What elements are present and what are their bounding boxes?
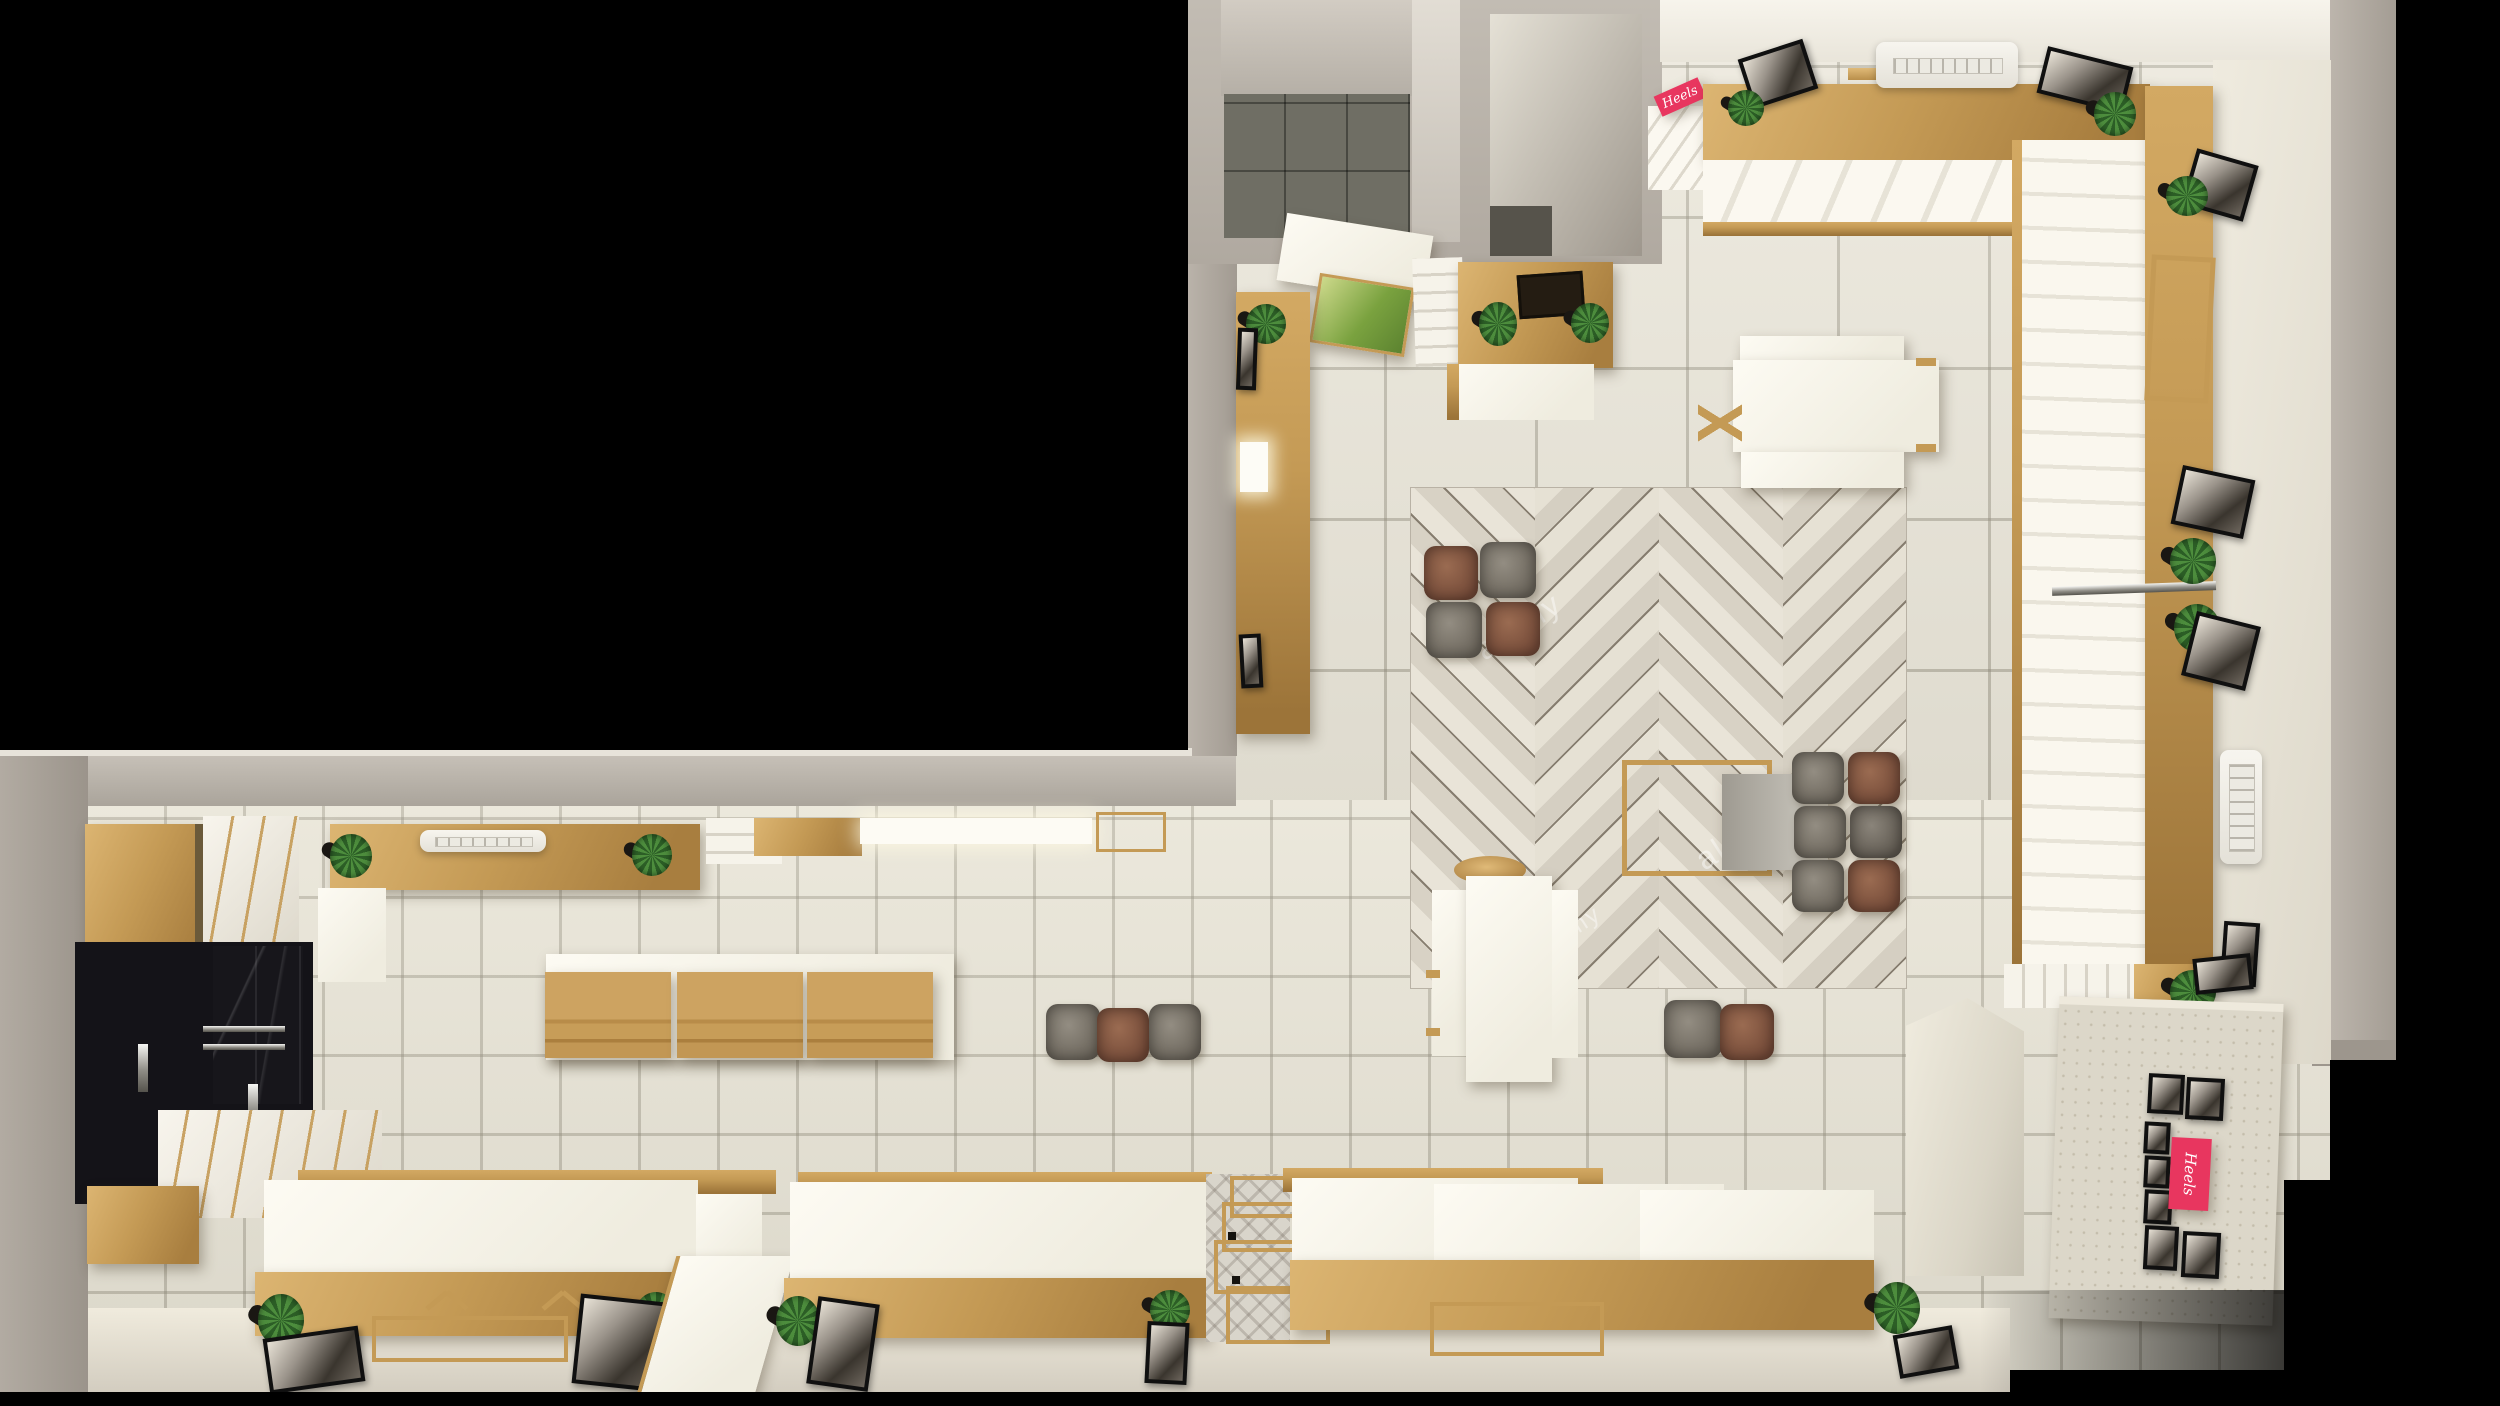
- leaning-gold-frame: [2144, 254, 2216, 403]
- closet-rail: [203, 1026, 285, 1032]
- ottoman-brown: [1848, 752, 1900, 804]
- ottoman-gray: [1794, 806, 1846, 858]
- bw-photo: [2189, 1081, 2221, 1117]
- rug-chevron-column: [1659, 488, 1783, 988]
- desk-white-base: [1447, 364, 1594, 420]
- gold-table-foot: [1426, 970, 1440, 978]
- ottoman-gray: [1426, 602, 1482, 658]
- gallery-frame: [2143, 1155, 2171, 1188]
- gallery-frame: [2181, 1231, 2221, 1279]
- right-shelving-bays: [2022, 140, 2145, 1008]
- left-top-wall: [0, 756, 1236, 806]
- white-door-fan: [203, 816, 299, 952]
- travertine-pillar: [1906, 998, 2024, 1276]
- ac-unit-right: [2220, 750, 2262, 864]
- desk-gold-strip: [1447, 364, 1459, 420]
- gold-easel-frame: [372, 1316, 568, 1362]
- black-unrendered-region: [0, 1392, 2500, 1406]
- potted-plant: [1571, 303, 1609, 343]
- backroom-wall-highlight: [1412, 0, 1460, 242]
- gallery-frame: [2185, 1077, 2225, 1121]
- framed-photo: [1239, 633, 1264, 688]
- ottoman-brown: [1720, 1004, 1774, 1060]
- bw-photo: [811, 1301, 876, 1388]
- ottoman-gray: [1792, 860, 1844, 912]
- ac-grill: [2229, 764, 2255, 853]
- bw-photo: [2197, 957, 2250, 990]
- ottoman-brown: [1424, 546, 1478, 600]
- corner-steps-display: [1648, 106, 1706, 190]
- white-side-cabinet: [318, 888, 386, 982]
- backroom-ceiling: [1221, 0, 1413, 96]
- table-bench: [1552, 890, 1578, 1058]
- gallery-frame: [2147, 1073, 2185, 1115]
- gold-x-leg: [1698, 376, 1742, 470]
- potted-plant: [2094, 92, 2136, 136]
- ottoman-gray: [1664, 1000, 1722, 1058]
- dining-bench: [1741, 452, 1904, 488]
- ottoman-gray: [1046, 1004, 1100, 1060]
- bw-photo: [1240, 332, 1254, 386]
- ottoman-gray: [1149, 1004, 1201, 1060]
- ottoman-gray: [1480, 542, 1536, 598]
- rug-chevron-column: [1783, 488, 1906, 988]
- rack-foot: [1228, 1232, 1236, 1240]
- bw-photo: [1897, 1330, 1954, 1374]
- ac-unit-top: [1876, 42, 2018, 88]
- gold-table-foot: [1426, 1028, 1440, 1036]
- ottoman-brown: [1097, 1008, 1149, 1062]
- framed-photo: [2192, 953, 2253, 995]
- ac-grill: [1893, 58, 2003, 75]
- black-unrendered-region: [0, 0, 1188, 750]
- ottoman-gray: [1850, 806, 1902, 858]
- bw-photo: [2185, 1235, 2217, 1275]
- store-render: alamy alamy alamy Heels: [0, 0, 2500, 1406]
- green-poster: [1309, 273, 1415, 357]
- ottoman-brown: [1848, 860, 1900, 912]
- gold-table-foot: [1916, 358, 1936, 366]
- light-panel: [1240, 442, 1268, 492]
- door-handle: [138, 1044, 148, 1092]
- leaning-framed-photo: [1144, 1321, 1189, 1385]
- black-unrendered-region: [2284, 1180, 2394, 1406]
- gold-riser-box: [807, 972, 933, 1058]
- bw-photo: [2147, 1126, 2166, 1151]
- right-outer-wall: [2330, 0, 2398, 1064]
- ottoman-gray: [1792, 752, 1844, 804]
- gold-table-foot: [1916, 444, 1936, 452]
- gold-riser-box: [677, 972, 803, 1058]
- white-table: [1733, 360, 1939, 452]
- corridor-floor-patch: [1490, 206, 1552, 256]
- rack-foot: [1232, 1276, 1240, 1284]
- heels-poster-label: Heels: [2180, 1152, 2200, 1196]
- display-table-top: [790, 1182, 1206, 1280]
- potted-plant: [2166, 176, 2208, 216]
- bw-photo: [2147, 1229, 2175, 1266]
- bw-photo: [2151, 1077, 2181, 1110]
- framed-photo: [1236, 328, 1258, 391]
- bw-photo: [267, 1330, 361, 1390]
- leaning-framed-photo: [806, 1296, 880, 1392]
- gallery-frame: [2143, 1225, 2179, 1271]
- closet-rail: [203, 1044, 285, 1050]
- gold-easel-frame: [1430, 1302, 1604, 1356]
- potted-plant: [1728, 90, 1764, 126]
- potted-plant: [1874, 1282, 1920, 1334]
- gallery-frame: [2143, 1121, 2171, 1154]
- counter-vent-panel: [420, 830, 546, 852]
- bw-photo: [1149, 1325, 1186, 1381]
- lit-white-counter: [860, 818, 1092, 844]
- bw-photo: [1243, 638, 1259, 685]
- potted-plant: [330, 834, 372, 878]
- gold-riser-box: [545, 972, 671, 1058]
- gold-clothes-rack: [1096, 812, 1166, 852]
- bw-photo: [2147, 1160, 2166, 1185]
- display-table-top: [264, 1180, 698, 1276]
- bw-photo: [2147, 1193, 2168, 1220]
- backroom-tile-floor: [1224, 94, 1410, 238]
- potted-plant: [632, 834, 672, 876]
- gold-edge-strip: [2012, 140, 2022, 1008]
- potted-plant: [2170, 538, 2216, 584]
- bw-photo: [2175, 470, 2250, 535]
- corner-shadow: [1980, 1290, 2330, 1394]
- potted-plant: [1479, 302, 1517, 346]
- gold-shelf-counter: [754, 818, 862, 856]
- black-marble-panels: [213, 946, 303, 1104]
- west-outer-wall: [1187, 264, 1237, 756]
- vent-grill: [435, 837, 533, 846]
- ottoman-brown: [1486, 602, 1540, 656]
- bw-photo: [2186, 616, 2256, 686]
- long-white-table: [1466, 876, 1552, 1082]
- gold-wardrobe-cabinet: [87, 1186, 199, 1264]
- heels-pink-poster: Heels: [2168, 1137, 2212, 1211]
- dining-bench: [1740, 336, 1904, 362]
